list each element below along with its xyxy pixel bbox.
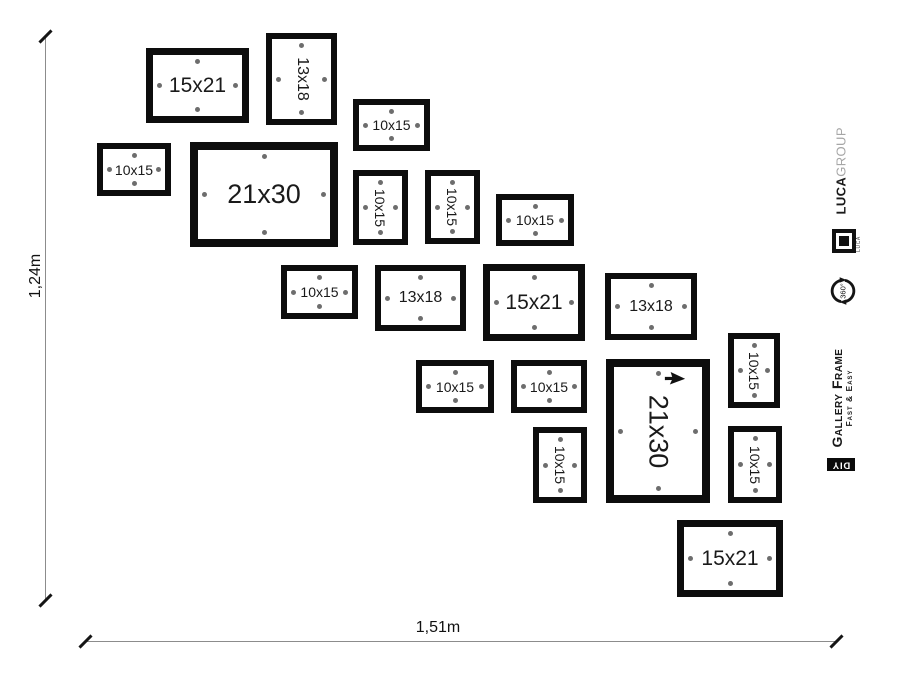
frame-15x21: 15x21 [677, 520, 783, 597]
mount-dot [728, 531, 733, 536]
mount-dot [656, 371, 661, 376]
mount-dot [107, 167, 112, 172]
mount-dot [752, 393, 757, 398]
mount-dot [532, 275, 537, 280]
mount-dot [276, 77, 281, 82]
cursor-pointer-icon [663, 368, 685, 397]
mount-dot [262, 154, 267, 159]
mount-dot [479, 384, 484, 389]
frame-size-label: 15x21 [505, 292, 562, 313]
mount-dot [378, 180, 383, 185]
mount-dot [767, 556, 772, 561]
mount-dot [618, 429, 623, 434]
diagram-canvas: 15x2113x1810x1510x1521x3010x1510x1510x15… [0, 0, 900, 678]
product-tagline: Fast & Easy [845, 342, 854, 454]
mount-dot [547, 370, 552, 375]
frame-size-label: 10x15 [115, 163, 153, 177]
mount-dot [656, 486, 661, 491]
brand-name-luca: LUCA [834, 177, 849, 215]
product-title: Gallery Frame [830, 342, 845, 454]
mount-dot [453, 398, 458, 403]
brand-name-group: GROUP [834, 127, 849, 177]
frame-size-label: 21x30 [227, 181, 301, 208]
frame-size-label: 10x15 [374, 188, 388, 226]
mount-dot [532, 325, 537, 330]
mount-dot [521, 384, 526, 389]
width-dimension-line [85, 641, 836, 642]
mount-dot [547, 398, 552, 403]
mount-dot [533, 231, 538, 236]
mount-dot [157, 83, 162, 88]
frame-10x15: 10x15 [425, 170, 480, 244]
frame-10x15: 10x15 [728, 426, 782, 503]
mount-dot [558, 437, 563, 442]
mount-dot [233, 83, 238, 88]
diy-badge: DIY [827, 458, 855, 471]
mount-dot [378, 230, 383, 235]
mount-dot [615, 304, 620, 309]
frame-15x21: 15x21 [146, 48, 249, 123]
mount-dot [363, 205, 368, 210]
mount-dot [559, 218, 564, 223]
mount-dot [738, 462, 743, 467]
frame-size-label: 21x30 [644, 394, 671, 468]
mount-dot [132, 153, 137, 158]
frame-size-label: 10x15 [553, 446, 567, 484]
mount-dot [558, 488, 563, 493]
frame-10x15: 10x15 [496, 194, 574, 246]
brand-name: LUCAGROUP [834, 139, 849, 215]
mount-dot [543, 463, 548, 468]
frame-size-label: 10x15 [747, 351, 761, 389]
mount-dot [728, 581, 733, 586]
mount-dot [291, 290, 296, 295]
mount-dot [451, 296, 456, 301]
mount-dot [765, 368, 770, 373]
diy-label: DIY [832, 460, 850, 470]
mount-dot [385, 296, 390, 301]
frame-size-label: 10x15 [516, 213, 554, 227]
mount-dot [682, 304, 687, 309]
mount-dot [569, 300, 574, 305]
mount-dot [195, 107, 200, 112]
mount-dot [262, 230, 267, 235]
rotate-360-label: 360° [839, 283, 848, 299]
mount-dot [649, 283, 654, 288]
mount-dot [767, 462, 772, 467]
mount-dot [465, 205, 470, 210]
mount-dot [195, 59, 200, 64]
frame-21x30: 21x30 [606, 359, 710, 503]
mount-dot [688, 556, 693, 561]
mount-dot [572, 463, 577, 468]
mount-dot [435, 205, 440, 210]
mount-dot [649, 325, 654, 330]
logo-wordmark: LUCA [856, 235, 862, 253]
mount-dot [753, 436, 758, 441]
mount-dot [572, 384, 577, 389]
mount-dot [299, 110, 304, 115]
frame-10x15: 10x15 [416, 360, 494, 413]
mount-dot [418, 316, 423, 321]
rotate-360-icon: 360° [828, 276, 858, 306]
mount-dot [363, 123, 368, 128]
mount-dot [450, 229, 455, 234]
frame-13x18: 13x18 [375, 265, 466, 331]
mount-dot [299, 43, 304, 48]
frame-size-label: 10x15 [530, 380, 568, 394]
mount-dot [322, 77, 327, 82]
frame-size-label: 10x15 [748, 445, 762, 483]
frame-10x15: 10x15 [281, 265, 358, 319]
mount-dot [317, 304, 322, 309]
frame-10x15: 10x15 [533, 427, 587, 503]
mount-dot [738, 368, 743, 373]
mount-dot [415, 123, 420, 128]
product-name: Gallery Frame Fast & Easy [830, 342, 856, 454]
mount-dot [418, 275, 423, 280]
mount-dot [132, 181, 137, 186]
mount-dot [753, 488, 758, 493]
frame-size-label: 10x15 [300, 285, 338, 299]
frame-size-label: 15x21 [701, 548, 758, 569]
mount-dot [389, 136, 394, 141]
frame-13x18: 13x18 [266, 33, 337, 125]
width-dimension-label: 1,51m [398, 620, 478, 636]
mount-dot [202, 192, 207, 197]
mount-dot [450, 180, 455, 185]
frame-13x18: 13x18 [605, 273, 697, 340]
mount-dot [156, 167, 161, 172]
frame-size-label: 10x15 [372, 118, 410, 132]
frame-10x15: 10x15 [353, 170, 408, 245]
luca-frame-logo-icon [832, 229, 856, 253]
frame-10x15: 10x15 [97, 143, 171, 196]
height-dimension-label: 1,24m [28, 246, 44, 306]
frame-size-label: 10x15 [436, 380, 474, 394]
frame-size-label: 13x18 [629, 299, 673, 315]
mount-dot [321, 192, 326, 197]
mount-dot [393, 205, 398, 210]
height-dimension-line [45, 36, 46, 600]
mount-dot [533, 204, 538, 209]
logo-inner-square [839, 236, 849, 246]
frame-size-label: 10x15 [446, 188, 460, 226]
mount-dot [752, 343, 757, 348]
frame-size-label: 13x18 [294, 57, 310, 101]
frame-10x15: 10x15 [728, 333, 780, 408]
frame-10x15: 10x15 [353, 99, 430, 151]
mount-dot [389, 109, 394, 114]
mount-dot [343, 290, 348, 295]
frame-size-label: 13x18 [399, 290, 443, 306]
frame-size-label: 15x21 [169, 75, 226, 96]
mount-dot [506, 218, 511, 223]
mount-dot [453, 370, 458, 375]
mount-dot [693, 429, 698, 434]
mount-dot [426, 384, 431, 389]
mount-dot [317, 275, 322, 280]
frame-21x30: 21x30 [190, 142, 338, 247]
frame-15x21: 15x21 [483, 264, 585, 341]
frame-10x15: 10x15 [511, 360, 587, 413]
mount-dot [494, 300, 499, 305]
